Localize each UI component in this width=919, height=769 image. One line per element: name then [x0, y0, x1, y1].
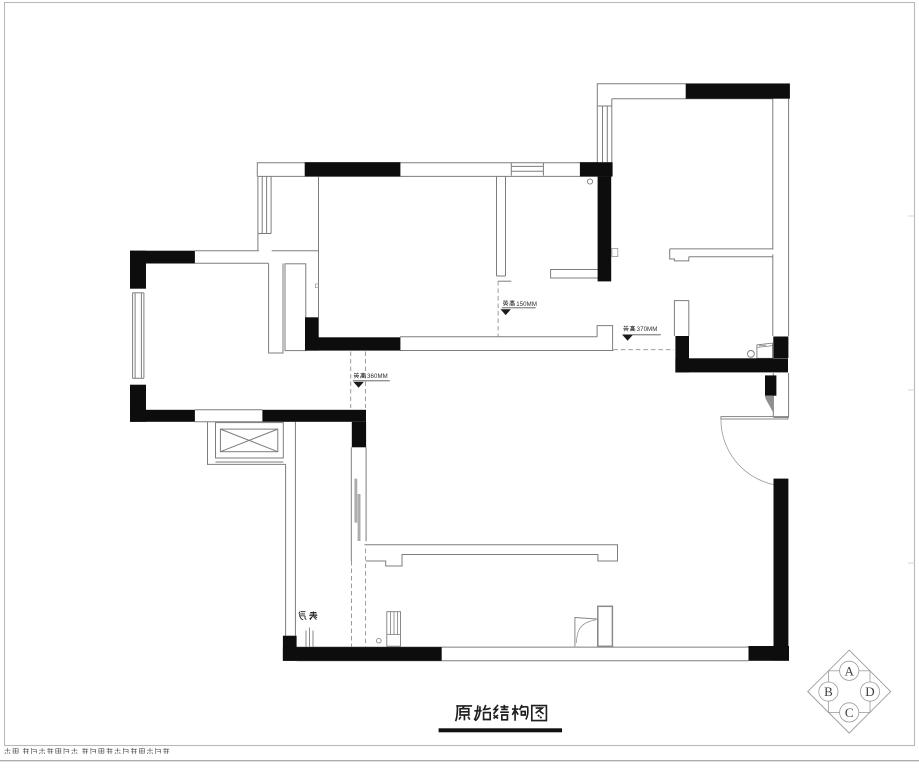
svg-text:C: C [845, 705, 854, 720]
svg-text:D: D [865, 684, 874, 699]
svg-text:370MM: 370MM [637, 326, 658, 333]
svg-text:A: A [845, 663, 855, 678]
svg-text:360MM: 360MM [367, 373, 388, 380]
svg-text:B: B [824, 684, 833, 699]
svg-text:150MM: 150MM [516, 301, 537, 308]
